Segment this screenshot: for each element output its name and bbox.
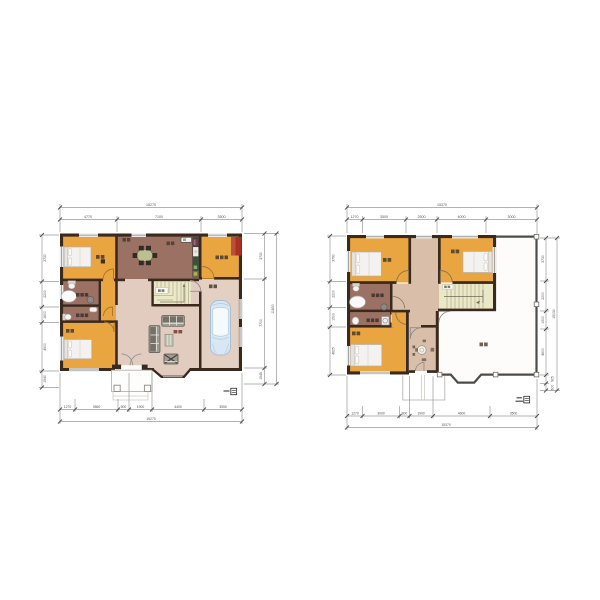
svg-text:800: 800 bbox=[402, 412, 408, 416]
svg-text:2200: 2200 bbox=[43, 290, 47, 298]
svg-text:600: 600 bbox=[551, 385, 555, 391]
svg-text:3500: 3500 bbox=[510, 412, 518, 416]
svg-text:2500: 2500 bbox=[418, 215, 426, 219]
svg-text:2200: 2200 bbox=[541, 292, 545, 300]
svg-text:15370: 15370 bbox=[437, 203, 447, 207]
svg-text:15370: 15370 bbox=[441, 423, 451, 427]
svg-text:3730: 3730 bbox=[541, 255, 545, 263]
svg-text:3730: 3730 bbox=[259, 252, 263, 260]
svg-text:1540: 1540 bbox=[43, 375, 47, 383]
svg-text:1500: 1500 bbox=[332, 313, 336, 321]
svg-text:1545: 1545 bbox=[259, 372, 263, 380]
svg-text:4400: 4400 bbox=[174, 405, 182, 409]
svg-text:11830: 11830 bbox=[271, 304, 275, 313]
svg-text:7100: 7100 bbox=[155, 215, 163, 219]
svg-text:4500: 4500 bbox=[43, 343, 47, 351]
svg-text:4625: 4625 bbox=[332, 347, 336, 355]
svg-text:4770: 4770 bbox=[84, 215, 92, 219]
svg-text:1270: 1270 bbox=[351, 215, 359, 219]
svg-text:1270: 1270 bbox=[64, 405, 72, 409]
svg-text:3790: 3790 bbox=[332, 254, 336, 262]
svg-text:3730: 3730 bbox=[43, 254, 47, 262]
svg-text:1500: 1500 bbox=[541, 316, 545, 324]
svg-text:925: 925 bbox=[551, 376, 555, 382]
svg-text:3500: 3500 bbox=[218, 215, 226, 219]
svg-text:7700: 7700 bbox=[259, 319, 263, 327]
svg-text:1270: 1270 bbox=[351, 412, 359, 416]
svg-text:1600: 1600 bbox=[43, 311, 47, 319]
svg-text:4000: 4000 bbox=[458, 215, 466, 219]
svg-text:3000: 3000 bbox=[377, 412, 385, 416]
svg-text:1900: 1900 bbox=[417, 412, 425, 416]
svg-text:15270: 15270 bbox=[146, 203, 156, 207]
svg-text:1900: 1900 bbox=[137, 405, 145, 409]
svg-text:15270: 15270 bbox=[146, 417, 156, 421]
svg-text:3560: 3560 bbox=[93, 405, 101, 409]
svg-text:3000: 3000 bbox=[508, 215, 516, 219]
svg-text:4600: 4600 bbox=[541, 348, 545, 356]
svg-text:3550: 3550 bbox=[219, 405, 227, 409]
svg-text:900: 900 bbox=[121, 405, 127, 409]
svg-text:15030: 15030 bbox=[552, 309, 556, 319]
svg-text:2200: 2200 bbox=[332, 290, 336, 298]
svg-text:4600: 4600 bbox=[458, 412, 466, 416]
svg-text:3500: 3500 bbox=[380, 215, 388, 219]
